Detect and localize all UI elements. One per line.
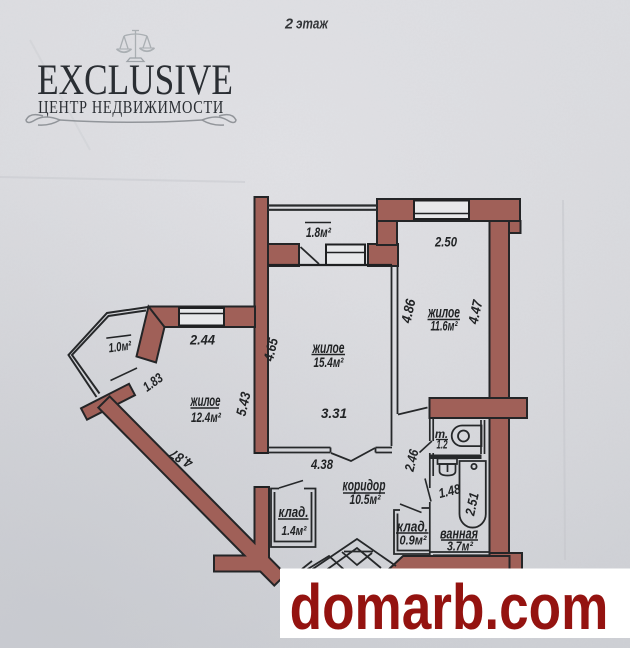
svg-text:0.9м²: 0.9м² [400,533,428,548]
svg-text:11.6м²: 11.6м² [431,319,458,334]
svg-text:2.44: 2.44 [189,332,215,348]
svg-text:4.38: 4.38 [310,456,333,472]
svg-text:2: 2 [284,17,293,33]
svg-text:domarb.com: domarb.com [290,572,609,643]
svg-text:этаж: этаж [296,17,329,33]
svg-text:1.0м²: 1.0м² [108,338,133,356]
svg-text:1.2: 1.2 [437,440,448,452]
svg-text:3.31: 3.31 [321,405,347,421]
svg-text:1.4м²: 1.4м² [282,523,308,538]
svg-text:1.8м²: 1.8м² [306,225,331,240]
svg-text:15.4м²: 15.4м² [314,355,344,370]
svg-text:10.5м²: 10.5м² [350,492,381,507]
svg-text:2.50: 2.50 [434,234,457,250]
svg-text:12.4м²: 12.4м² [191,410,221,425]
svg-text:3.7м²: 3.7м² [447,539,474,554]
svg-text:ЦЕНТР НЕДВИЖИМОСТИ: ЦЕНТР НЕДВИЖИМОСТИ [38,96,224,117]
